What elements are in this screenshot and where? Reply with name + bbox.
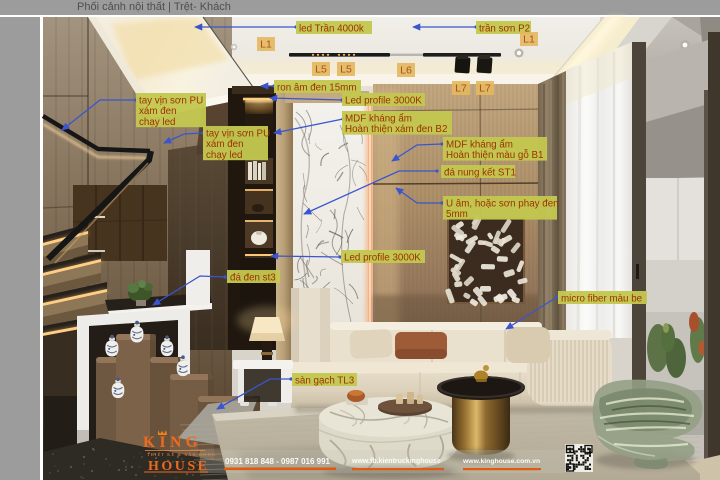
svg-text:L5: L5 — [315, 64, 327, 76]
svg-text:micro fiber màu be: micro fiber màu be — [561, 294, 643, 305]
svg-text:đá nung kết ST1: đá nung kết ST1 — [444, 168, 516, 179]
svg-text:THIẾT KẾ & XÂY DỰNG: THIẾT KẾ & XÂY DỰNG — [147, 452, 216, 457]
svg-text:www.fb.kientruckinghouse: www.fb.kientruckinghouse — [351, 458, 441, 465]
svg-text:chạy led: chạy led — [206, 150, 243, 161]
svg-text:chạy led: chạy led — [139, 117, 176, 128]
svg-text:5mm: 5mm — [446, 209, 468, 220]
svg-text:L7: L7 — [455, 83, 467, 95]
svg-text:Led profile 3000K: Led profile 3000K — [344, 253, 421, 264]
svg-text:tay vịn sơn PU: tay vịn sơn PU — [139, 96, 203, 107]
svg-text:L1: L1 — [523, 34, 535, 46]
svg-text:Hoàn thiện xám đen B2: Hoàn thiện xám đen B2 — [345, 124, 447, 135]
svg-text:MDF kháng ẩm: MDF kháng ẩm — [446, 140, 513, 151]
svg-text:đá đen st3: đá đen st3 — [230, 273, 276, 284]
svg-text:0931 818 848 - 0987 016 991: 0931 818 848 - 0987 016 991 — [225, 457, 331, 466]
svg-text:Hoàn thiện màu gỗ B1: Hoàn thiện màu gỗ B1 — [446, 150, 544, 161]
svg-text:L7: L7 — [479, 83, 491, 95]
svg-text:Led profile 3000K: Led profile 3000K — [345, 96, 422, 107]
svg-text:ron âm đen 15mm: ron âm đen 15mm — [277, 83, 357, 94]
svg-text:sàn gạch TL3: sàn gạch TL3 — [295, 376, 355, 387]
svg-text:led Trần 4000k: led Trần 4000k — [299, 24, 364, 35]
svg-text:KING: KING — [143, 434, 202, 451]
svg-text:L1: L1 — [260, 39, 272, 51]
svg-text:MDF kháng ẩm: MDF kháng ẩm — [345, 114, 412, 125]
svg-text:xám đen: xám đen — [206, 139, 244, 150]
svg-text:tay vịn sơn PU: tay vịn sơn PU — [206, 129, 270, 140]
svg-text:xám đen: xám đen — [139, 106, 177, 117]
svg-text:www.kinghouse.com.vn: www.kinghouse.com.vn — [462, 458, 540, 465]
svg-text:L6: L6 — [400, 65, 412, 77]
svg-text:L5: L5 — [340, 64, 352, 76]
svg-text:U âm, hoặc sơn phay đen: U âm, hoặc sơn phay đen — [446, 199, 559, 210]
